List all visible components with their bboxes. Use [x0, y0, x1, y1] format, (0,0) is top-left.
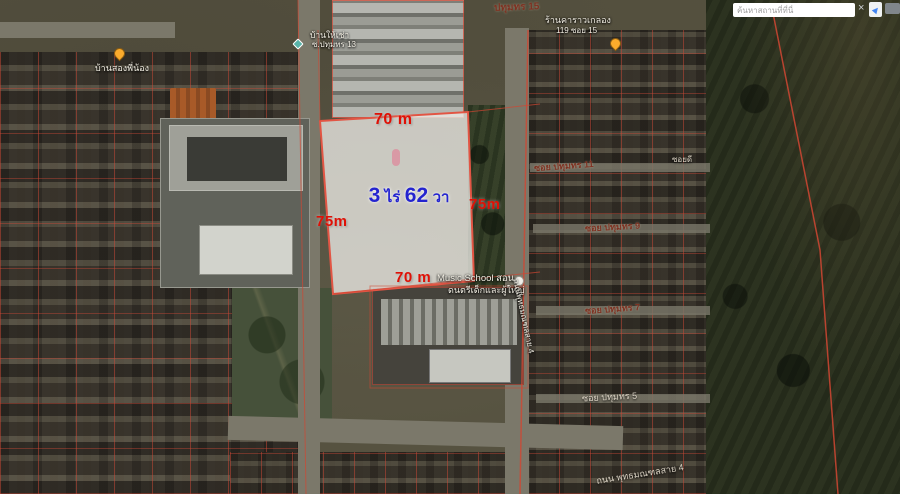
place-label-shop-2[interactable]: 119 ซอย 15 [556, 27, 597, 36]
parcel-line [370, 286, 528, 388]
dimension-right: 75m [469, 196, 501, 213]
plot-area-label: 3 ไร่ 62 วา [353, 184, 465, 209]
parcel-line [468, 104, 540, 112]
place-label-shop-1[interactable]: ร้านคาราวเกลอง [545, 16, 611, 26]
dimension-left: 75m [316, 213, 348, 230]
street-label-pathumthon15: ปทุมทร 15 [494, 1, 540, 14]
area-rai-unit: ไร่ [385, 189, 401, 206]
search-input[interactable] [733, 3, 855, 17]
navigation-arrow-icon [871, 5, 879, 13]
toolbar-button[interactable] [885, 3, 900, 14]
close-icon[interactable]: × [858, 2, 864, 14]
cadastral-overlay [0, 0, 900, 494]
parcel-line [772, 8, 838, 494]
dimension-top: 70 m [374, 111, 412, 129]
area-wa-number: 62 [405, 184, 428, 207]
place-label-rental-2[interactable]: ซ.ปทุมทร 13 [312, 41, 356, 50]
place-label-house[interactable]: บ้านสองพี่น้อง [72, 64, 172, 74]
parcel-line [298, 0, 306, 494]
area-wa-unit: วา [433, 189, 450, 206]
parcel-line [520, 30, 528, 494]
street-label-soidee: ซอยดี [672, 156, 692, 165]
area-rai-number: 3 [369, 184, 381, 207]
directions-button[interactable] [869, 2, 882, 17]
place-label-rental-1[interactable]: บ้านให้เช่า [310, 31, 349, 40]
dimension-bottom: 70 m [395, 269, 431, 286]
place-label-music-1[interactable]: Music School สอน [437, 274, 514, 284]
plot-marker-icon [392, 149, 400, 166]
satellite-map-canvas[interactable]: 70 m 75m 75m 70 m 3 ไร่ 62 วา บ้านสองพี่… [0, 0, 900, 494]
